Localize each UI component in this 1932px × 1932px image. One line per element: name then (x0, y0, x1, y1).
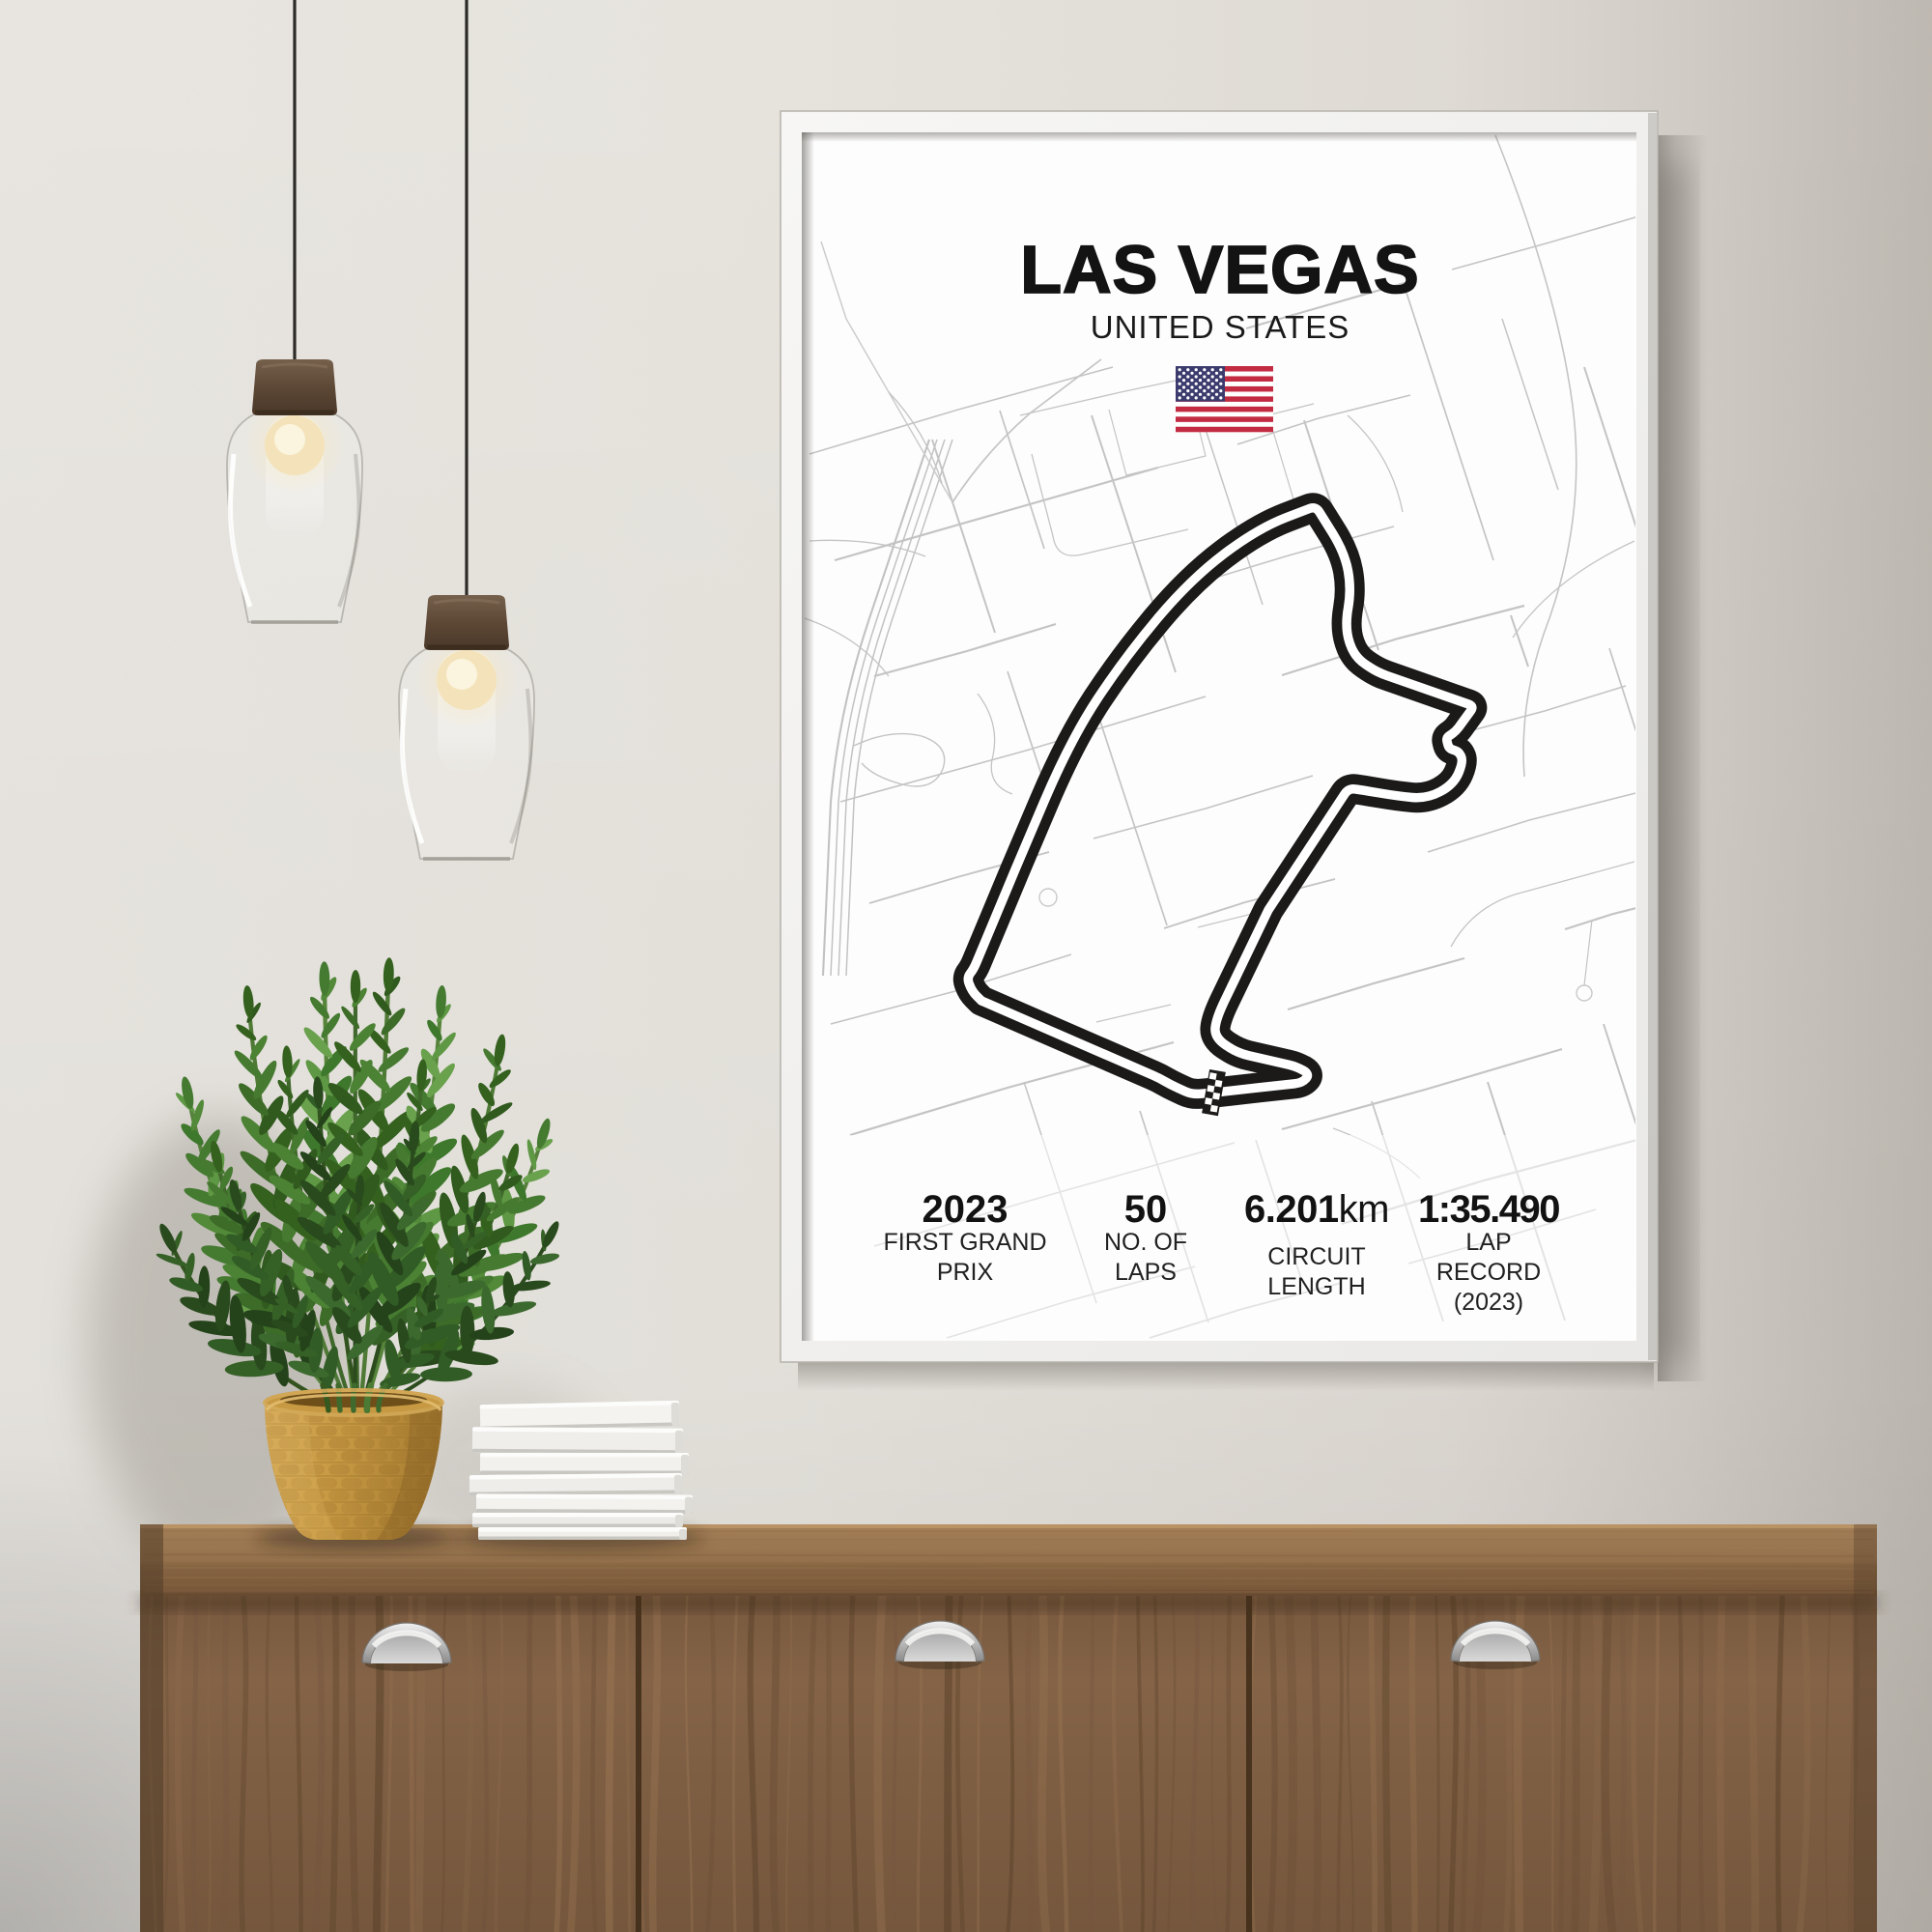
svg-text:LAS VEGAS: LAS VEGAS (1020, 232, 1420, 307)
svg-text:(2023): (2023) (1454, 1289, 1523, 1316)
svg-text:PRIX: PRIX (937, 1259, 994, 1286)
svg-text:1:35.490: 1:35.490 (1418, 1188, 1559, 1231)
svg-text:6.201km: 6.201km (1244, 1188, 1389, 1231)
svg-text:UNITED STATES: UNITED STATES (1091, 309, 1350, 345)
svg-text:FIRST GRAND: FIRST GRAND (884, 1229, 1047, 1256)
svg-text:LAPS: LAPS (1115, 1259, 1177, 1286)
svg-text:RECORD: RECORD (1436, 1259, 1541, 1286)
svg-text:LAP: LAP (1465, 1229, 1511, 1256)
svg-text:LENGTH: LENGTH (1267, 1273, 1365, 1300)
svg-text:CIRCUIT: CIRCUIT (1267, 1243, 1365, 1270)
svg-text:NO. OF: NO. OF (1104, 1229, 1187, 1256)
svg-text:50: 50 (1124, 1188, 1168, 1231)
svg-text:2023: 2023 (923, 1188, 1009, 1231)
